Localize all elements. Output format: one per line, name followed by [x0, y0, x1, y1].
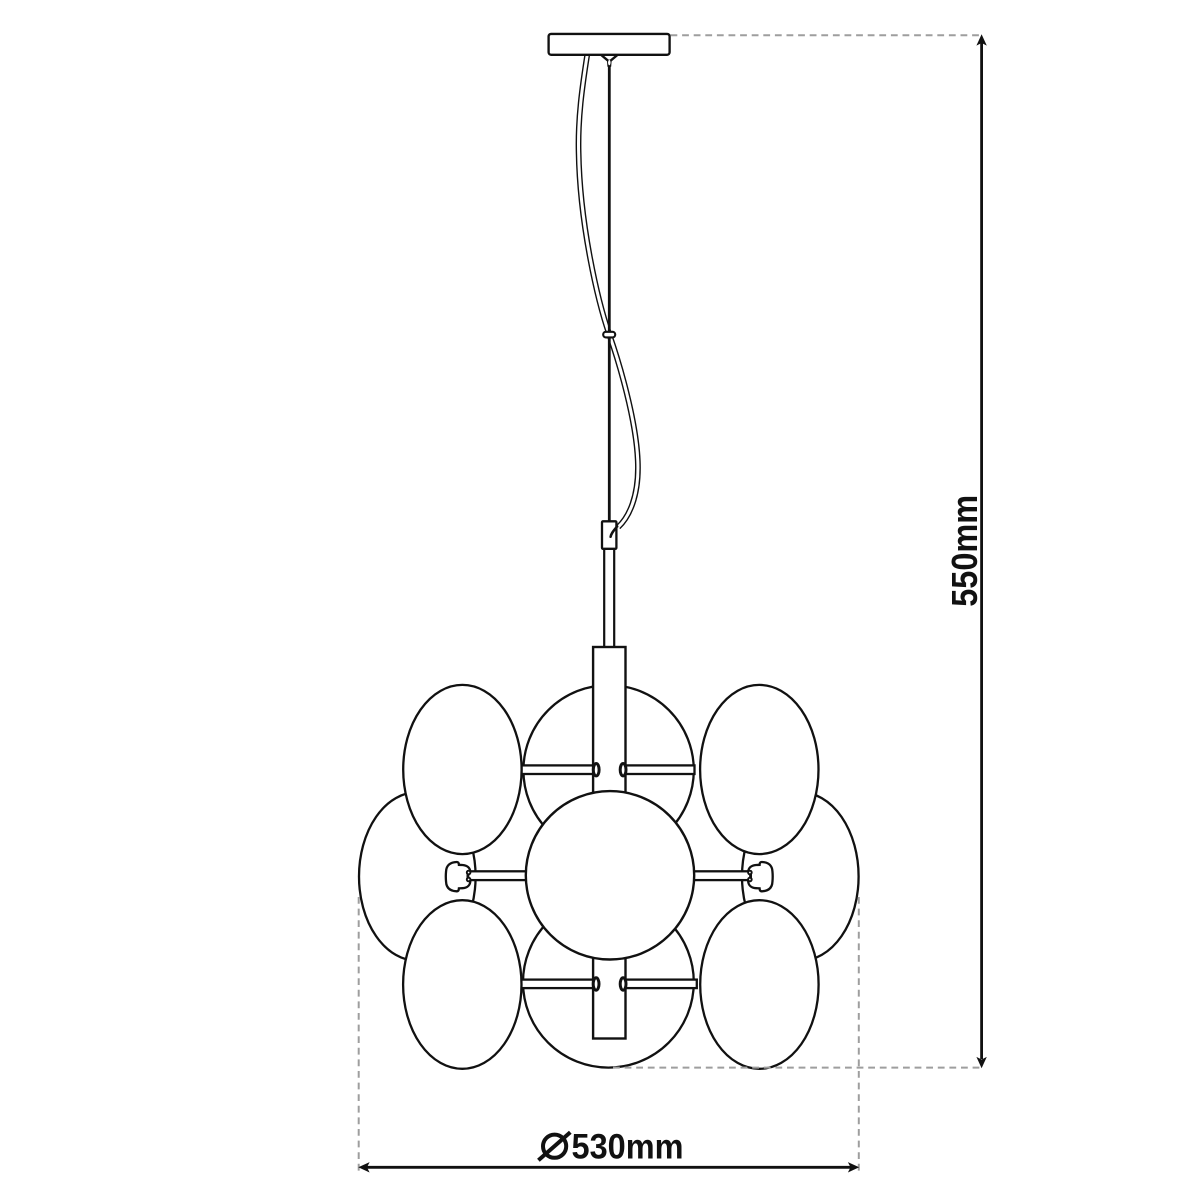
- svg-text:550mm: 550mm: [944, 495, 985, 607]
- svg-text:530mm: 530mm: [572, 1127, 684, 1167]
